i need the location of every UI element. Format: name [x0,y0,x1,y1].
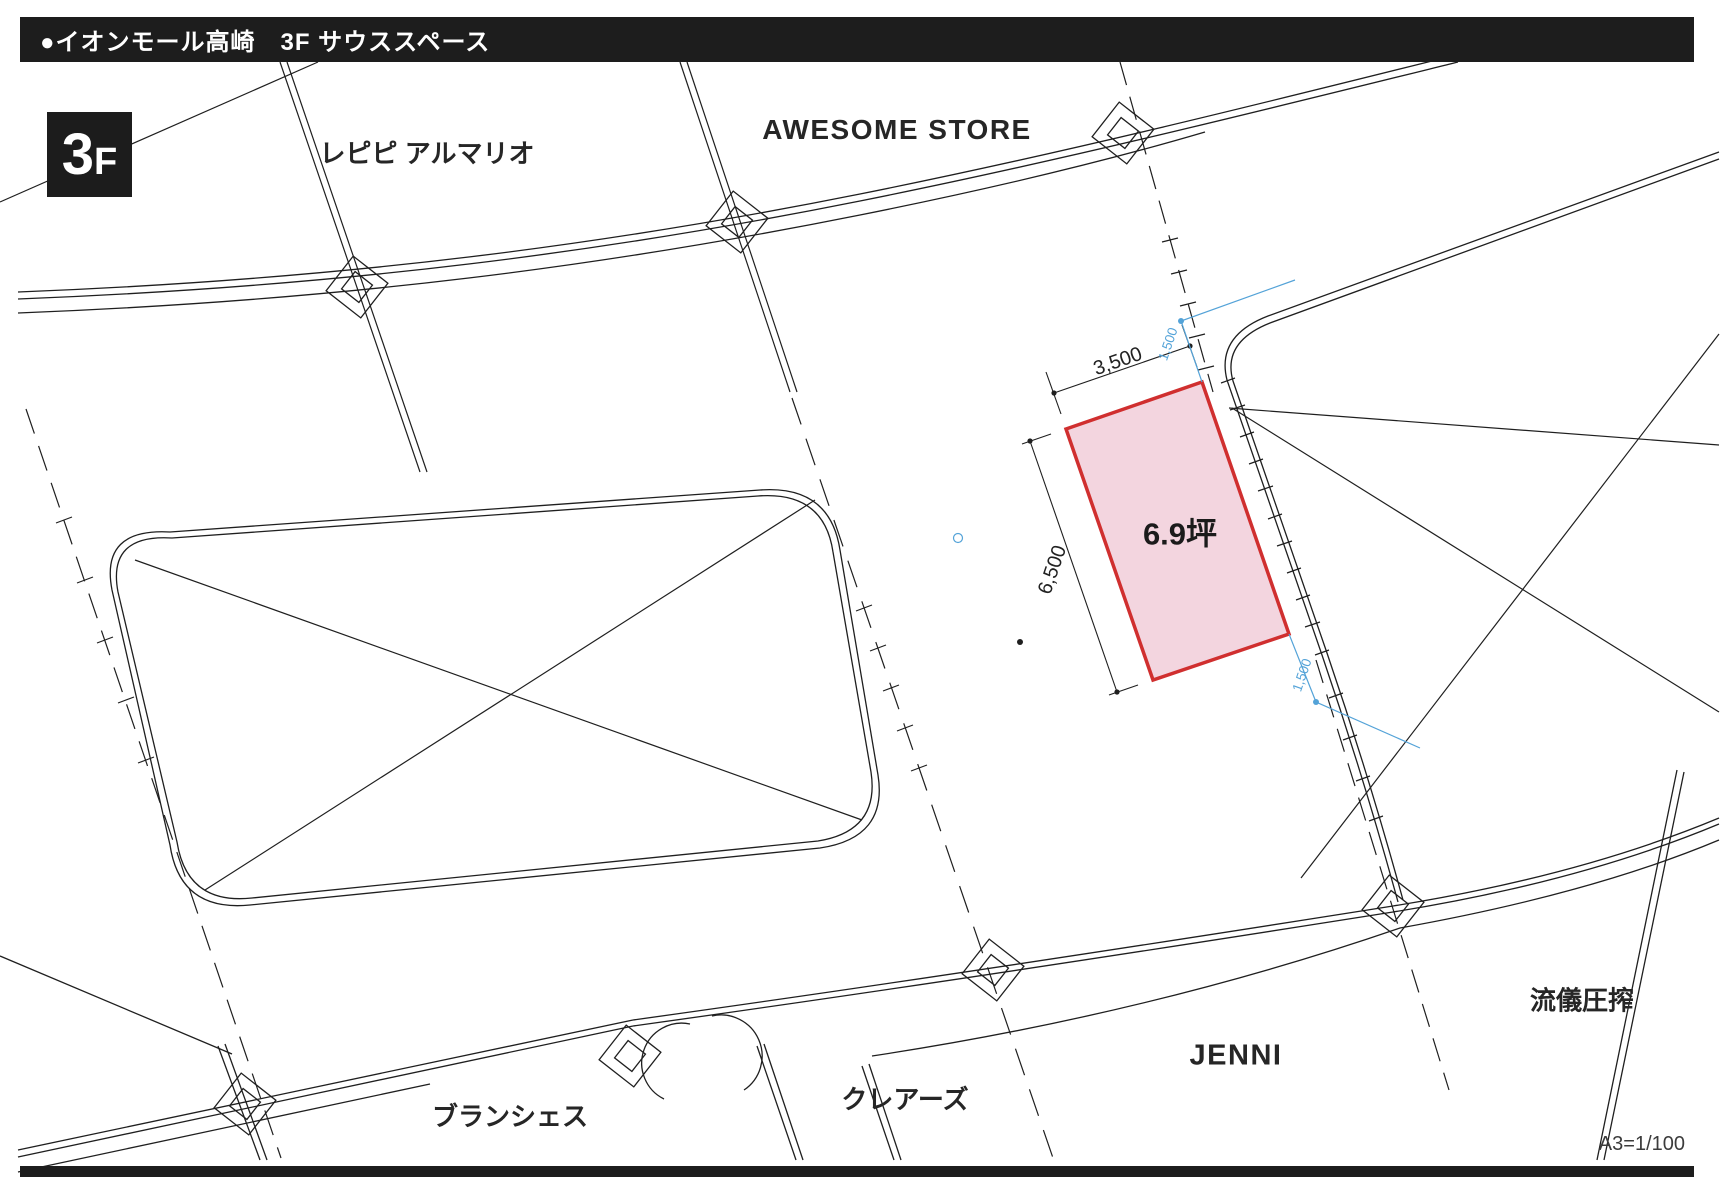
store-label-ryugi: 流儀圧搾 [1530,981,1634,1018]
footer-bar [20,1166,1694,1177]
door-swing-arc [642,1023,690,1099]
small-blue-circle [954,534,963,543]
center-line [1316,660,1449,1090]
floor-badge: 3 F [47,112,132,197]
grid-ticks [56,517,154,763]
tenant-divider-wall [1597,770,1684,1160]
floor-number: 3 [62,126,94,184]
store-label-awesome-store: AWESOME STORE [762,114,1031,146]
door-swing-arc [712,1015,762,1090]
floorplan-page: ●イオンモール高崎 3F サウススペース 3 F レピピ アルマリオ AWESO… [0,0,1720,1186]
right-zone-diagonals [1229,334,1719,878]
store-label-jenni: JENNI [1190,1040,1283,1073]
void-cross-line [205,500,815,890]
vacant-space-area-label: 6.9坪 [1143,509,1217,554]
store-label-branshes: ブランシェス [432,1097,588,1134]
floorplan-drawing [0,0,1720,1186]
void-cross-line [135,560,862,820]
floor-suffix: F [94,143,117,181]
bottom-corridor-wall [0,818,1719,1172]
reference-dot [1017,639,1023,645]
center-line [26,409,281,1158]
header-bar: ●イオンモール高崎 3F サウススペース [20,17,1694,62]
page-title: ●イオンモール高崎 3F サウススペース [20,22,490,57]
store-label-claires: クレアーズ [841,1080,968,1117]
scale-note: A3=1/100 [1599,1133,1685,1156]
column-symbol [599,1025,661,1087]
store-label-repipi: レピピ アルマリオ [320,134,535,171]
top-corridor-wall [18,56,1458,313]
center-line [792,398,1053,1158]
east-corridor-wall [1225,152,1719,902]
column-symbol [706,191,768,253]
escalator-void [110,490,879,906]
